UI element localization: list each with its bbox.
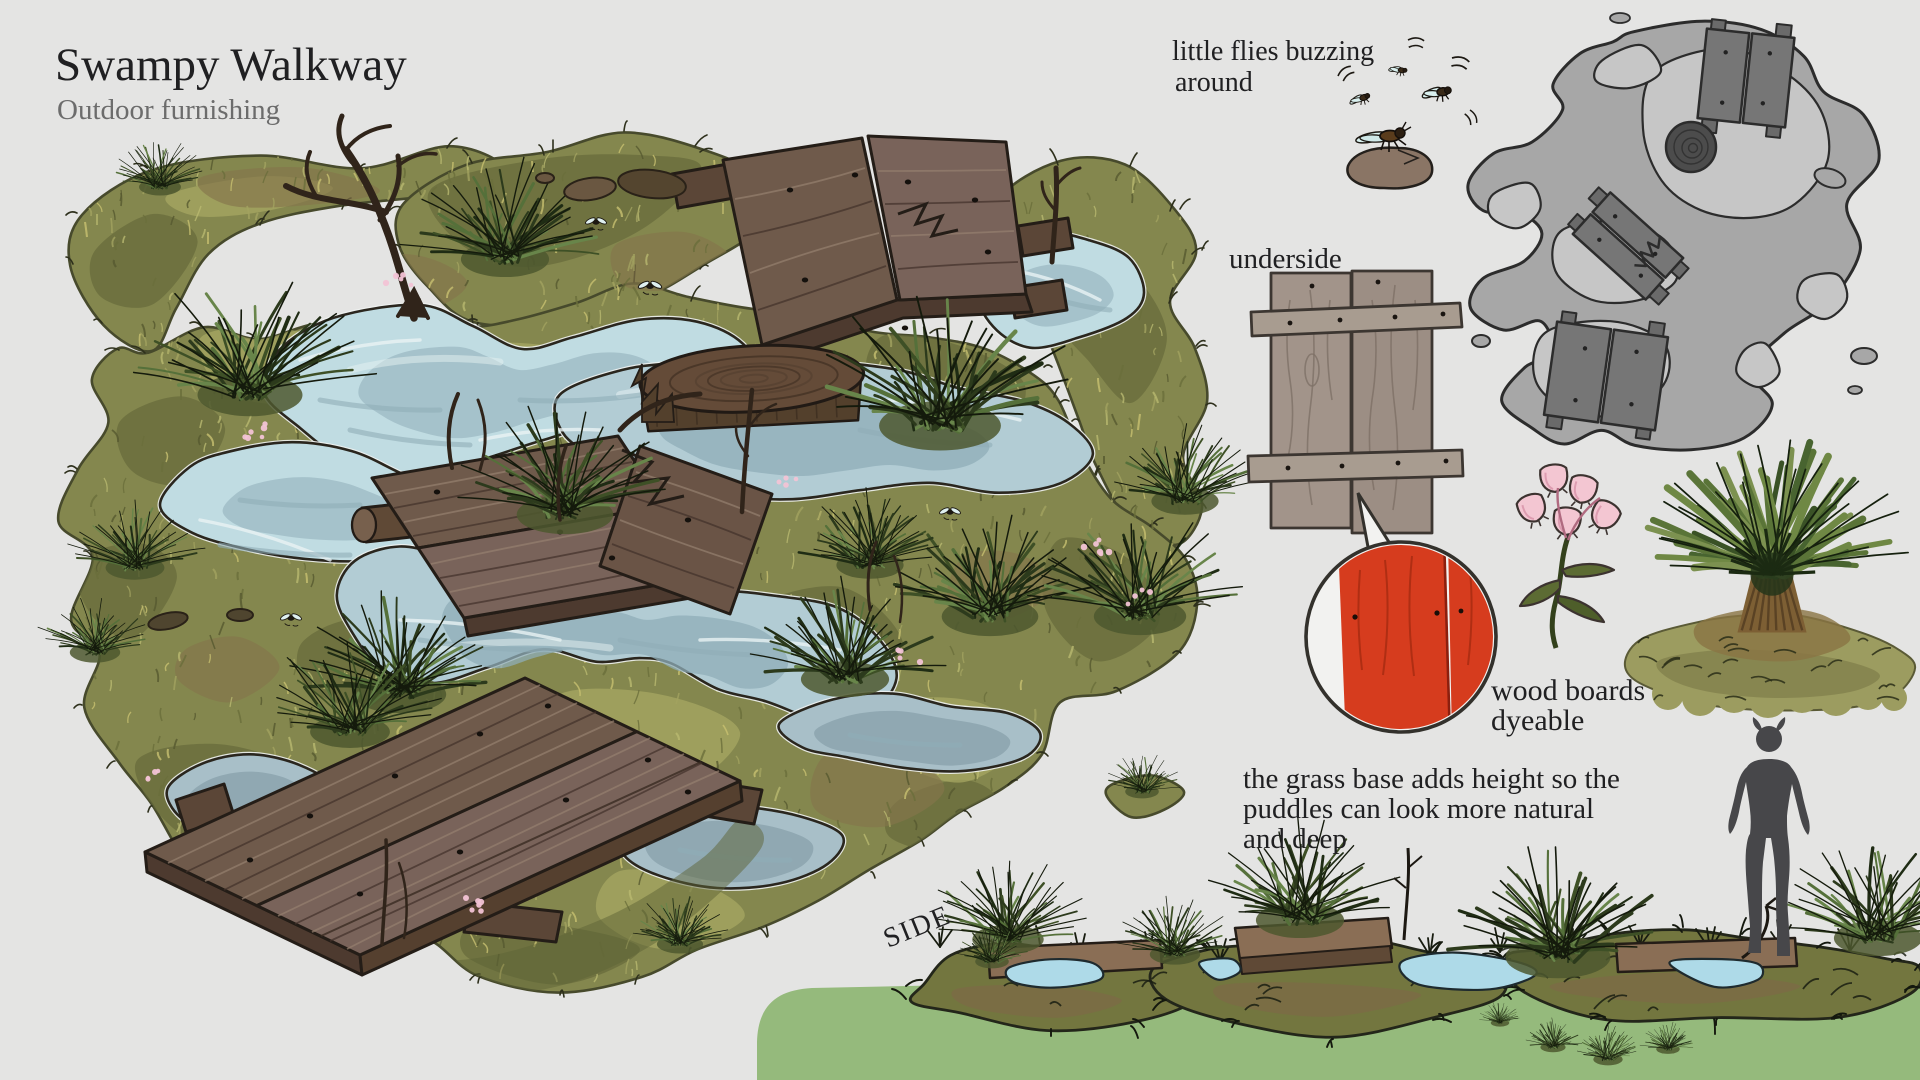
svg-text:around: around [1175,67,1253,98]
svg-text:and deep: and deep [1243,823,1347,855]
svg-text:Outdoor furnishing: Outdoor furnishing [57,94,280,126]
svg-text:little flies buzzing: little flies buzzing [1172,36,1374,67]
svg-text:wood boards: wood boards [1491,674,1645,707]
svg-text:Swampy Walkway: Swampy Walkway [55,39,407,91]
svg-text:underside: underside [1229,243,1342,275]
svg-text:puddles can look more natural: puddles can look more natural [1243,793,1594,825]
svg-text:dyeable: dyeable [1491,704,1584,737]
svg-text:the grass base adds height so: the grass base adds height so the [1243,763,1620,795]
